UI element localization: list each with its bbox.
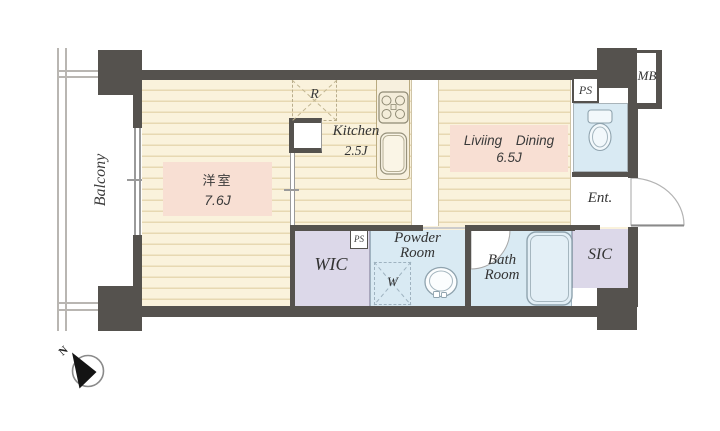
entrance-door-arc-icon	[631, 178, 684, 226]
refrigerator-space: R	[292, 80, 337, 121]
bath-room-line1: Bath	[488, 252, 516, 268]
pipe-space-top-label: PS	[579, 83, 592, 97]
pipe-space-wic: PS	[350, 230, 368, 249]
meter-box-label: MB	[635, 68, 659, 88]
living-dining-size: 6.5J	[496, 150, 522, 165]
living-dining-name: Liviing Dining	[464, 133, 554, 148]
floor-plan: Balcony R PS PS 洋室 7.6J Liviing D	[0, 0, 720, 431]
balcony-top-edge	[59, 76, 99, 78]
balcony-top-edge	[59, 70, 99, 72]
bath-room-label: Bath Room	[471, 253, 533, 289]
bath-wall-top	[465, 225, 575, 231]
bath-room-line2: Room	[485, 267, 520, 283]
kitchen-name: Kitchen	[333, 123, 380, 139]
living-dining-label-box: Liviing Dining 6.5J	[450, 125, 568, 172]
sic-label: SIC	[572, 246, 628, 270]
powder-room-label: Powder Room	[370, 231, 465, 265]
pillar-bottom-left	[98, 286, 142, 331]
wall-bottom	[142, 306, 637, 317]
kitchen-label: Kitchen 2.5J	[318, 122, 394, 162]
wall-left-upper	[133, 95, 142, 128]
western-room-name: 洋室	[202, 170, 232, 189]
entrance-label: Ent.	[572, 190, 628, 212]
washer-label: W	[374, 274, 411, 294]
pipe-space-top: PS	[572, 77, 599, 103]
compass-north-label: N	[57, 344, 71, 358]
balcony-bottom-edge	[59, 302, 99, 304]
pillar-top-right	[597, 48, 637, 88]
wic-label: WIC	[294, 254, 368, 280]
wall-right-lower	[628, 227, 638, 307]
balcony-rail-outer	[57, 48, 59, 331]
window	[134, 128, 136, 235]
balcony-label: Balcony	[87, 130, 115, 230]
wall-top	[142, 70, 600, 80]
refrigerator-label: R	[310, 87, 319, 102]
window	[139, 128, 141, 235]
balcony-bottom-edge	[59, 309, 99, 311]
powder-room-line2: Room	[400, 245, 435, 261]
compass-icon: N	[57, 344, 104, 388]
window-tick	[127, 179, 142, 181]
powder-room-door-opening	[423, 227, 465, 229]
western-room-size: 7.6J	[204, 192, 230, 208]
pipe-space-wic-label: PS	[354, 234, 364, 244]
kitchen-passage	[411, 80, 439, 226]
sliding-door-tick	[284, 189, 299, 191]
room-toilet	[573, 103, 628, 172]
kitchen-size: 2.5J	[345, 143, 368, 158]
toilet-wall-bottom	[572, 172, 628, 177]
wall-left-lower	[133, 235, 142, 287]
western-room-label-box: 洋室 7.6J	[163, 162, 272, 216]
balcony-rail-inner	[65, 48, 67, 331]
entrance-sic-wall	[572, 225, 600, 230]
pillar-top-left	[98, 50, 142, 95]
powder-room-line1: Powder	[394, 230, 441, 246]
